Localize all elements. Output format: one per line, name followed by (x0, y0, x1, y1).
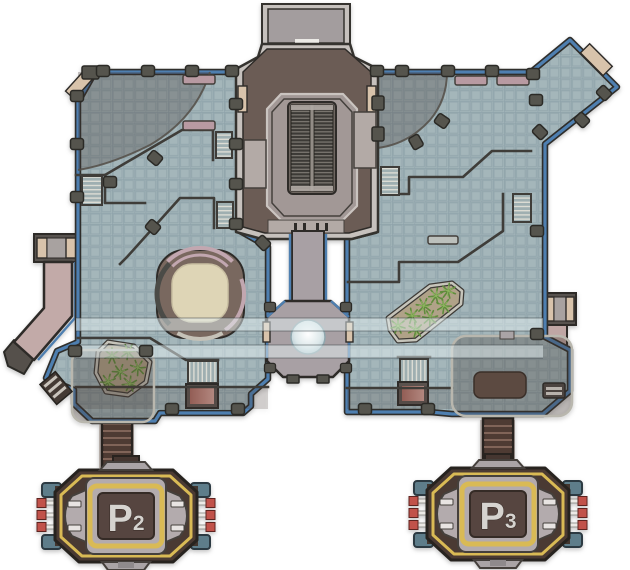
stairs (82, 176, 102, 205)
right-door-right-post (566, 297, 574, 321)
wall-knob (104, 177, 117, 188)
escalator-divider (310, 105, 314, 191)
structure-tab (372, 127, 384, 141)
ramp-door-left-post (37, 238, 47, 258)
structure-tab (372, 96, 384, 110)
p3-platform-structure (474, 372, 526, 398)
structure-left-block (244, 140, 266, 188)
entrance-sill (295, 39, 319, 43)
escalator-left-belt (291, 105, 310, 191)
ladder (543, 383, 565, 398)
bench (497, 76, 529, 85)
ramp-door-opening (47, 238, 66, 258)
walkway-band-upper (76, 318, 543, 331)
bench-light (428, 236, 458, 244)
p2-exit-platform (72, 350, 154, 422)
top-entrance (268, 9, 344, 43)
stairs (400, 359, 428, 382)
bench (455, 76, 487, 85)
stairs (513, 194, 531, 222)
stairs (188, 361, 218, 383)
corridor-stem (292, 231, 324, 305)
escalator-right-belt (314, 105, 333, 191)
bench (183, 121, 215, 130)
ramp-door-right-post (66, 238, 76, 258)
stairs (381, 167, 399, 195)
kiosk-top (172, 264, 228, 322)
level-map: P2 P3 (0, 0, 630, 570)
right-door-opening (554, 297, 566, 321)
